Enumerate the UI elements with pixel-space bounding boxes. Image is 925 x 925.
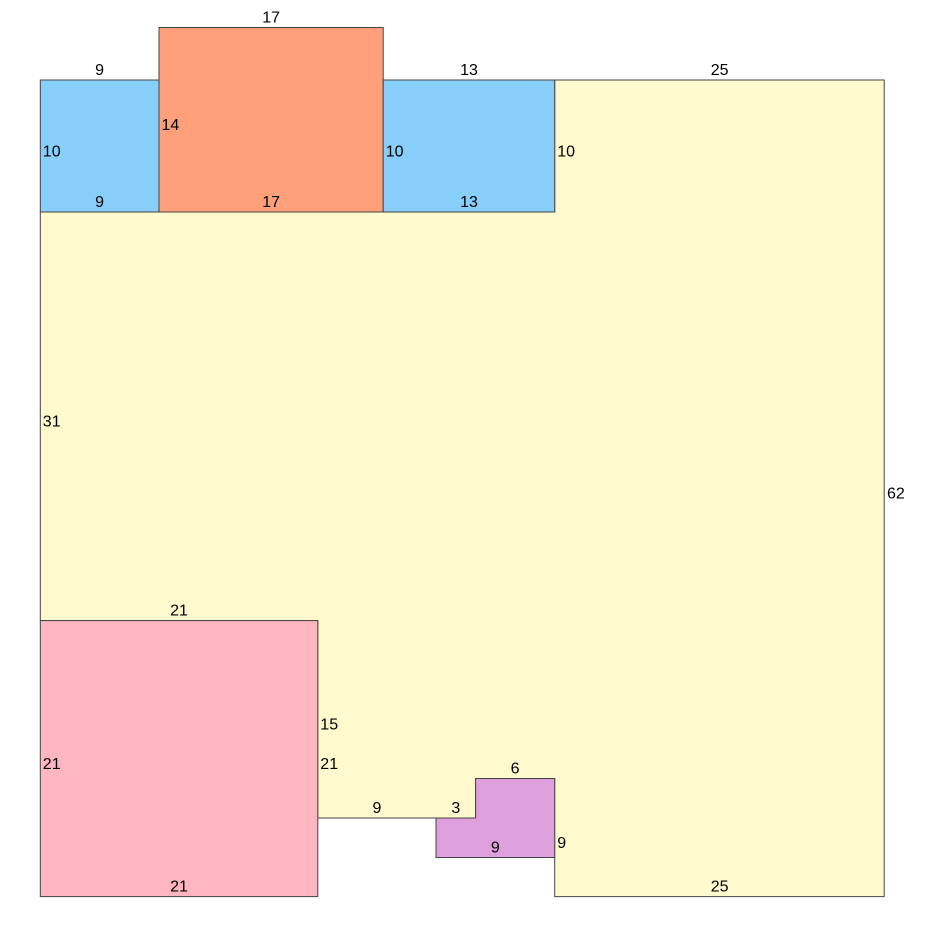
svg-text:13: 13 bbox=[460, 62, 478, 79]
svg-text:21: 21 bbox=[170, 603, 188, 620]
svg-text:17: 17 bbox=[262, 10, 280, 27]
svg-text:15: 15 bbox=[320, 717, 338, 734]
svg-text:21: 21 bbox=[170, 879, 188, 896]
svg-text:9: 9 bbox=[372, 800, 381, 817]
svg-text:9: 9 bbox=[95, 194, 104, 211]
svg-text:3: 3 bbox=[451, 800, 460, 817]
svg-text:9: 9 bbox=[557, 835, 566, 852]
svg-text:9: 9 bbox=[95, 62, 104, 79]
svg-text:10: 10 bbox=[43, 143, 61, 160]
svg-text:25: 25 bbox=[711, 62, 729, 79]
svg-text:10: 10 bbox=[386, 143, 404, 160]
svg-text:13: 13 bbox=[460, 194, 478, 211]
svg-text:10: 10 bbox=[557, 143, 575, 160]
svg-text:62: 62 bbox=[887, 486, 905, 503]
svg-text:6: 6 bbox=[511, 761, 520, 778]
svg-text:25: 25 bbox=[711, 879, 729, 896]
svg-text:31: 31 bbox=[43, 414, 61, 431]
svg-text:14: 14 bbox=[162, 117, 180, 134]
svg-text:21: 21 bbox=[43, 756, 61, 773]
svg-text:17: 17 bbox=[262, 194, 280, 211]
svg-text:21: 21 bbox=[320, 756, 338, 773]
svg-text:9: 9 bbox=[491, 840, 500, 857]
